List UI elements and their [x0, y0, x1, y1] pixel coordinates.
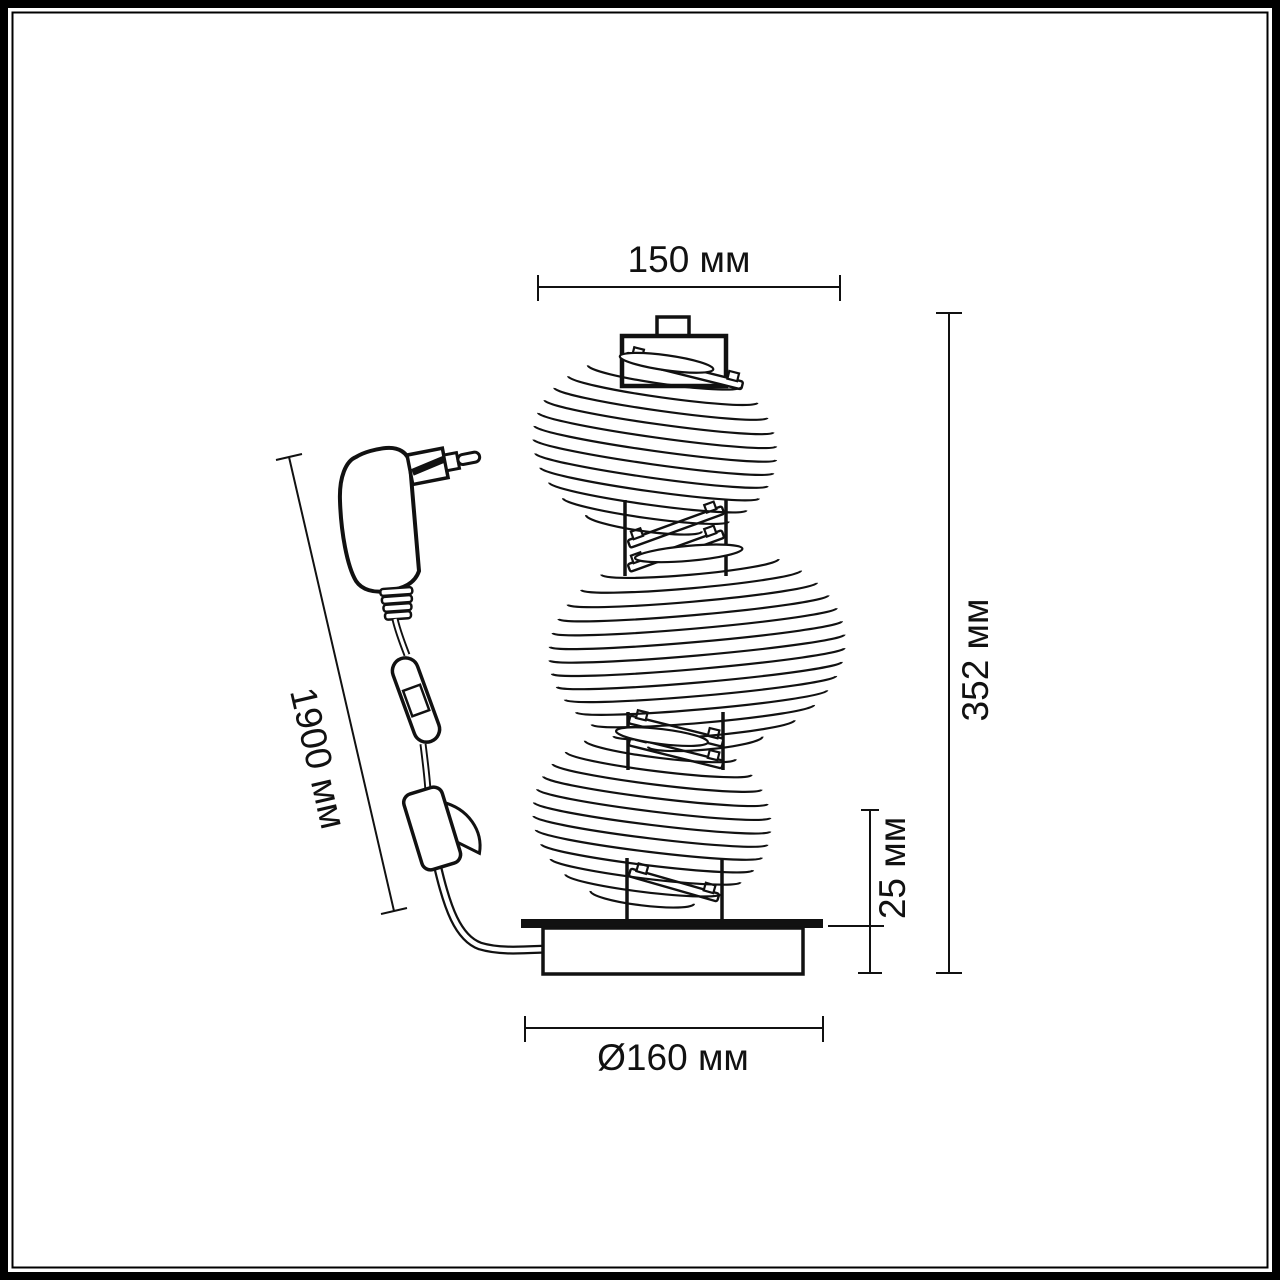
power-adapter: [340, 442, 548, 951]
strain-relief-coil: [380, 587, 414, 620]
drawing-canvas: 150 мм 352 мм 25 мм Ø160 мм 1900 мм: [0, 0, 1280, 1280]
inline-connector: [389, 654, 444, 746]
ribbed-shades: [522, 338, 853, 919]
lamp-base: [521, 919, 823, 974]
technical-drawing: 150 мм 352 мм 25 мм Ø160 мм 1900 мм: [0, 0, 1280, 1280]
plug-pins: [407, 442, 482, 485]
dim-label-total-height: 352 мм: [955, 599, 996, 722]
table-lamp: [521, 317, 853, 974]
dim-label-base-height: 25 мм: [872, 817, 913, 919]
inline-switch: [401, 778, 484, 872]
adapter-body: [340, 448, 419, 592]
power-cord: [437, 864, 548, 950]
dim-label-top-width: 150 мм: [628, 239, 751, 280]
dim-label-cord-length: 1900 мм: [282, 684, 354, 833]
border-frame: [4, 4, 1276, 1276]
base-body: [543, 928, 803, 974]
dim-label-base-diameter: Ø160 мм: [597, 1037, 749, 1078]
